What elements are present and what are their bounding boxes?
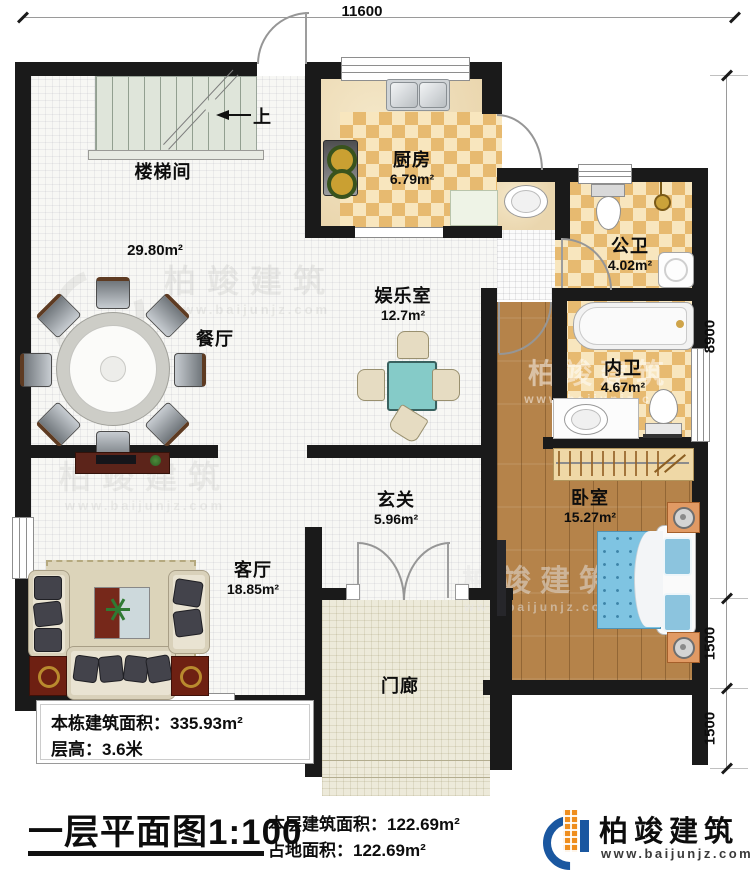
room-label-living: 客厅 18.85m²: [203, 560, 303, 597]
end-table-right-ring: [180, 666, 202, 688]
room-label-porch: 门廊: [350, 676, 450, 697]
entertainment-chair-left: [357, 369, 385, 401]
room-label-bedroom: 卧室 15.27m²: [540, 488, 640, 525]
end-table-left-ring: [38, 666, 60, 688]
bedroom-name: 卧室: [540, 488, 640, 509]
wall-left-upper: [15, 62, 31, 517]
total-floor-area: 本层建筑面积：122.69m²: [268, 810, 460, 835]
sofa-cushion: [33, 600, 64, 627]
public-bath-name: 公卫: [580, 236, 680, 257]
dining-chair: [96, 277, 130, 309]
room-label-stairwell: 楼梯间: [113, 162, 213, 183]
sofa-cushion: [72, 654, 99, 683]
porch-step-line-2: [322, 777, 490, 778]
room-label-entertainment: 娱乐室 12.7m²: [353, 286, 453, 323]
public-bath-window: [578, 164, 632, 184]
hall-area-label: 29.80m²: [105, 242, 205, 259]
wall-bedroom-bottom: [483, 680, 708, 695]
dining-chair: [20, 353, 52, 387]
floor-plan-canvas: 柏竣建筑 www.baijunjz.com 柏竣建筑 www.baijunjz.…: [0, 0, 750, 872]
wall-top-left: [15, 62, 257, 76]
stairs-landing: [88, 150, 264, 160]
dimension-line-right: [726, 75, 727, 768]
foyer-area: 5.96m²: [346, 511, 446, 527]
logo-company-name: 柏竣建筑: [599, 808, 739, 850]
shower-head: [654, 194, 671, 211]
public-bath-door-leaf: [561, 238, 563, 288]
foyer-door-leaf-right: [447, 542, 449, 598]
bed-pillow-bottom: [663, 593, 692, 632]
nightstand-lamp: [673, 637, 695, 659]
entertainment-area: 12.7m²: [353, 307, 453, 323]
stats-floor-height: 层高：3.6米: [51, 735, 143, 760]
wall-kitchen-left: [305, 62, 321, 238]
nightstand-lamp: [673, 507, 695, 529]
room-label-kitchen: 厨房 6.79m²: [362, 150, 462, 187]
wall-kitchen-right-upper: [482, 76, 502, 114]
alcove-washbasin-bowl: [511, 190, 541, 213]
kitchen-sink-basin-right: [419, 82, 447, 108]
wall-foyer-door-left: [322, 588, 348, 600]
stove-burner-bottom: [327, 169, 357, 199]
plan-title: 一层平面图1:100: [28, 804, 303, 855]
public-bath-area: 4.02m²: [580, 257, 680, 273]
total-land-area: 占地面积：122.69m²: [268, 836, 426, 861]
sofa-cushion: [34, 628, 62, 652]
company-logo: 柏竣建筑 www.baijunjz.com: [543, 806, 743, 866]
entertainment-chair-top: [397, 331, 429, 359]
sofa-cushion: [172, 608, 203, 638]
wall-corridor-left: [481, 288, 497, 600]
porch-name: 门廊: [350, 676, 450, 697]
living-side-window: [12, 517, 34, 579]
private-bath-area: 4.67m²: [573, 379, 673, 395]
tv: [96, 455, 136, 464]
stairs-up-label: 上: [253, 103, 271, 129]
wall-foyer-divider: [307, 445, 497, 458]
entry-door-arc: [257, 12, 309, 64]
living-name: 客厅: [203, 560, 303, 581]
dimension-top-value: 11600: [330, 3, 394, 20]
entry-door-leaf: [305, 12, 307, 64]
sofa-cushion: [34, 576, 62, 600]
wall-kitchen-bottom-right: [443, 226, 502, 238]
foyer-name: 玄关: [346, 490, 446, 511]
mahjong-table: [387, 361, 437, 411]
dining-chair: [174, 353, 206, 387]
sofa-cushion: [98, 655, 125, 683]
stats-box: 本栋建筑面积：335.93m² 层高：3.6米: [36, 700, 314, 764]
dining-name: 餐厅: [165, 329, 265, 350]
stairs-up-arrow: [216, 110, 229, 120]
shower-alcove-floor: [497, 230, 555, 300]
wardrobe-hangers: [558, 451, 660, 476]
dimension-right-seg2: 1500: [702, 697, 719, 761]
stairs-up-arrow-tail: [229, 114, 251, 116]
living-area: 18.85m²: [203, 581, 303, 597]
porch-step-line-1: [322, 760, 490, 761]
bathtub-inner: [579, 307, 687, 345]
kitchen-sliding-door: [355, 227, 443, 238]
room-label-dining: 餐厅: [165, 329, 265, 350]
entertainment-chair-right: [432, 369, 460, 401]
room-label-public-bath: 公卫 4.02m²: [580, 236, 680, 273]
stairwell-name: 楼梯间: [113, 162, 213, 183]
private-bath-name: 内卫: [573, 358, 673, 379]
stats-building-area: 本栋建筑面积：335.93m²: [51, 709, 243, 734]
bedroom-tv-panel: [497, 540, 506, 616]
room-label-private-bath: 内卫 4.67m²: [573, 358, 673, 395]
foyer-door-post-left: [346, 584, 360, 600]
wall-private-bath-left: [552, 288, 567, 400]
dimension-right-seg1: 1500: [702, 612, 719, 676]
dining-table-hub: [100, 356, 126, 382]
logo-building-icon-bar: [580, 820, 589, 852]
plan-title-underline: [28, 851, 264, 856]
wall-kitchen-bottom-left: [308, 226, 355, 238]
hall-area-value: 29.80m²: [105, 242, 205, 259]
logo-company-url: www.baijunjz.com: [601, 846, 750, 861]
sofa-cushion: [145, 654, 173, 684]
bed-pillow-top: [663, 537, 692, 576]
corridor-door-leaf: [498, 302, 500, 353]
private-toilet-base: [643, 434, 682, 438]
logo-building-icon: [563, 810, 578, 852]
room-label-foyer: 玄关 5.96m²: [346, 490, 446, 527]
vanity-basin-bowl: [571, 409, 601, 430]
porch-floor: [322, 600, 490, 796]
cabinet-plant: [150, 455, 161, 466]
bed-blanket-fold: [634, 531, 663, 627]
kitchen-name: 厨房: [362, 150, 462, 171]
kitchen-door-arc: [497, 114, 543, 170]
entertainment-name: 娱乐室: [353, 286, 453, 307]
dimension-right-total: 8900: [702, 305, 719, 369]
kitchen-cabinet: [450, 190, 498, 226]
sofa-cushion: [172, 578, 204, 608]
wall-public-bath-left: [555, 182, 570, 240]
foyer-door-post-right: [455, 584, 469, 600]
bedroom-area: 15.27m²: [540, 509, 640, 525]
kitchen-sink-basin-left: [390, 82, 418, 108]
bathtub-faucet: [676, 320, 684, 328]
kitchen-window: [341, 57, 470, 81]
kitchen-area: 6.79m²: [362, 171, 462, 187]
